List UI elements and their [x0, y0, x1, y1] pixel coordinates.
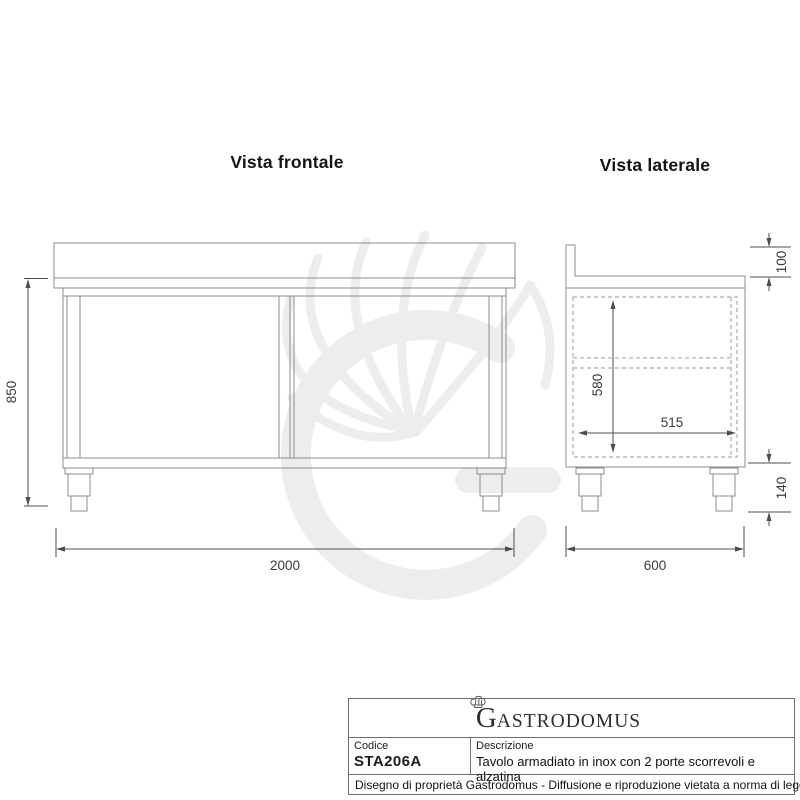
side-right-leg [710, 468, 738, 511]
front-view-title: Vista frontale [157, 152, 417, 173]
front-left-leg [65, 468, 93, 511]
front-right-leg [477, 468, 505, 511]
dimension-front-height [24, 279, 48, 507]
title-block-footer: Disegno di proprietà Gastrodomus - Diffu… [349, 774, 794, 795]
title-block-mid-row: Codice STA206A Descrizione Tavolo armadi… [349, 737, 794, 774]
front-view [54, 243, 515, 511]
front-height-label: 850 [4, 381, 19, 404]
dimension-side-inner-depth [578, 430, 736, 435]
side-leg-height-label: 140 [774, 477, 789, 500]
front-width-label: 2000 [270, 558, 300, 573]
side-inner-depth-label: 515 [661, 415, 684, 430]
side-backsplash-label: 100 [774, 251, 789, 274]
front-worktop [54, 243, 515, 288]
side-depth-label: 600 [644, 558, 667, 573]
side-outline [566, 245, 745, 467]
logo-letters-rest: ASTRODOMUS [497, 712, 641, 732]
description-label: Descrizione [476, 740, 789, 752]
side-view-title: Vista laterale [525, 155, 785, 176]
side-inner-height-label: 580 [590, 374, 605, 397]
title-block-logo-row: GASTRODOMUS [349, 699, 794, 737]
code-cell: Codice STA206A [349, 738, 471, 774]
gastrodomus-logo: GASTRODOMUS [476, 704, 641, 733]
code-value: STA206A [354, 753, 465, 770]
description-cell: Descrizione Tavolo armadiato in inox con… [471, 738, 794, 774]
code-label: Codice [354, 740, 465, 752]
chef-hat-icon [469, 695, 487, 715]
dimension-front-width [56, 528, 514, 557]
title-block: GASTRODOMUS Codice STA206A Descrizione T… [348, 698, 795, 795]
front-sliding-doors-gap [279, 296, 294, 458]
front-body [63, 288, 506, 468]
side-left-leg [576, 468, 604, 511]
dimension-side-inner-height [611, 300, 616, 453]
dimension-side-depth [566, 526, 744, 557]
technical-drawing: 850 2000 [0, 0, 800, 800]
front-dimensions [24, 279, 514, 558]
